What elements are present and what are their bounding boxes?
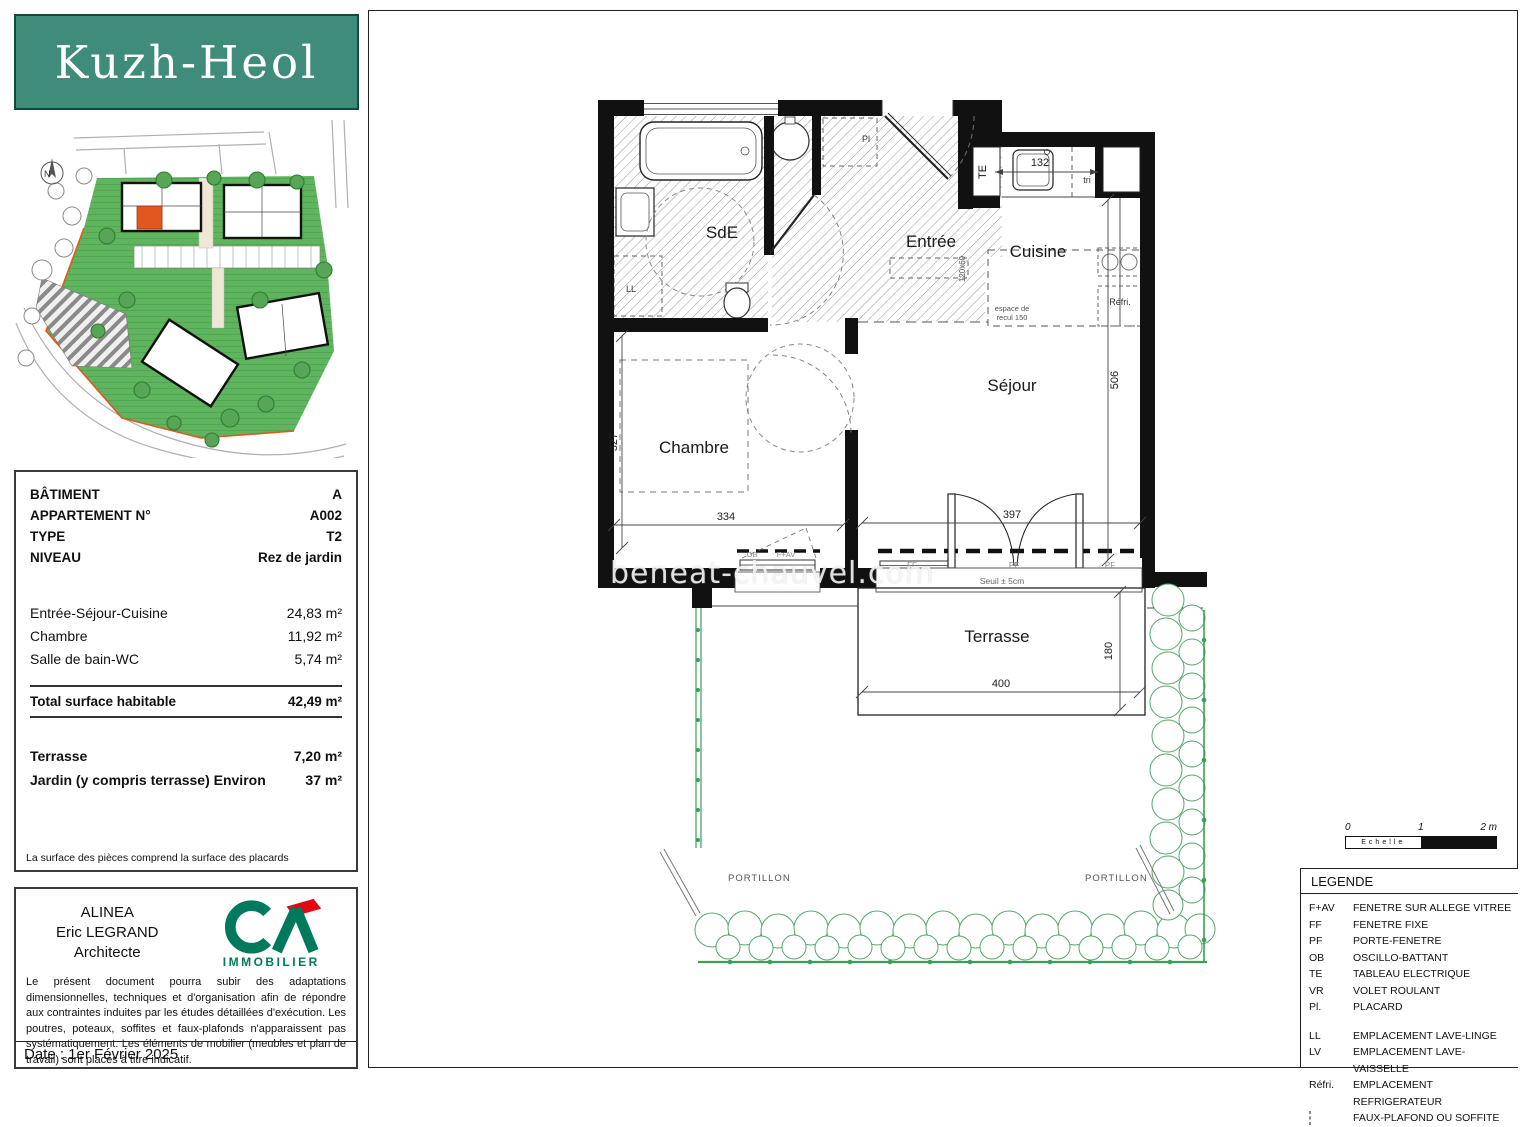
outdoor-row: Terrasse7,20 m² bbox=[30, 744, 342, 768]
tri-niche bbox=[1103, 147, 1140, 192]
north-compass: N bbox=[41, 158, 63, 184]
pl-label: Pl bbox=[862, 134, 870, 144]
architect-company: ALINEA bbox=[22, 903, 193, 923]
legend-row: TETABLEAU ELECTRIQUE bbox=[1301, 966, 1518, 983]
info-row: BÂTIMENTA bbox=[30, 484, 342, 505]
garden bbox=[660, 584, 1215, 964]
tri-label: tri bbox=[1083, 175, 1091, 185]
portillon-label-left: PORTILLON bbox=[728, 873, 791, 884]
pf-label-2: PF bbox=[1105, 561, 1115, 570]
dim-180: 180 bbox=[1103, 642, 1115, 660]
scale-label: Echelle bbox=[1346, 837, 1422, 848]
dim-334: 334 bbox=[717, 511, 735, 523]
residence-logo-text: Kuzh-Heol bbox=[55, 36, 319, 89]
room-label-cuisine: Cuisine bbox=[1010, 242, 1067, 261]
architect-name: Eric LEGRAND bbox=[22, 923, 193, 943]
garden-fence bbox=[696, 608, 1207, 962]
site-plan: N bbox=[14, 118, 359, 458]
surface-note: La surface des pièces comprend la surfac… bbox=[26, 852, 289, 864]
surface-row: Entrée-Séjour-Cuisine24,83 m² bbox=[30, 602, 342, 625]
te-label: TE bbox=[977, 165, 989, 179]
outdoor-list: Terrasse7,20 m² Jardin (y compris terras… bbox=[30, 744, 342, 792]
surface-list: Entrée-Séjour-Cuisine24,83 m² Chambre11,… bbox=[30, 602, 342, 671]
refri-label: Réfri. bbox=[1109, 297, 1131, 307]
scale-bar-black bbox=[1422, 837, 1497, 848]
wc-toilet bbox=[724, 283, 750, 318]
chambre-door-swing bbox=[773, 355, 851, 433]
legend-row: Réfri.EMPLACEMENT REFRIGERATEUR bbox=[1301, 1077, 1518, 1110]
dim-506: 506 bbox=[1109, 371, 1121, 389]
surface-row: Chambre11,92 m² bbox=[30, 625, 342, 648]
dim-397: 397 bbox=[1003, 509, 1021, 521]
washbasin bbox=[616, 188, 654, 236]
legend-row: VRVOLET ROULANT bbox=[1301, 983, 1518, 1000]
architect-box: ALINEA Eric LEGRAND Architecte IMMOBILIE… bbox=[14, 887, 358, 1069]
room-label-entree: Entrée bbox=[906, 232, 956, 251]
legend-row: LLEMPLACEMENT LAVE-LINGE bbox=[1301, 1028, 1518, 1045]
architect-names: ALINEA Eric LEGRAND Architecte bbox=[22, 903, 193, 963]
legend-title: LEGENDE bbox=[1301, 869, 1518, 894]
room-label-sde: SdE bbox=[706, 223, 738, 242]
legend-row: OBOSCILLO-BATTANT bbox=[1301, 950, 1518, 967]
hedge-bottom bbox=[695, 911, 1215, 960]
dim-132: 132 bbox=[1031, 157, 1049, 169]
architect-title: Architecte bbox=[22, 943, 193, 963]
scale-bar: 0 1 2 m Echelle bbox=[1345, 822, 1497, 849]
portillon-label-right: PORTILLON bbox=[1085, 873, 1148, 884]
ll-label: LL bbox=[626, 284, 636, 294]
scale-tick-2: 2 m bbox=[1480, 822, 1497, 833]
legend-row: FAUX-PLAFOND OU SOFFITE bbox=[1301, 1110, 1518, 1127]
total-surface-row: Total surface habitable42,49 m² bbox=[30, 685, 342, 718]
legend-row: Pl.PLACARD bbox=[1301, 999, 1518, 1016]
legend-box: LEGENDE F+AVFENETRE SUR ALLEGE VITREE FF… bbox=[1300, 868, 1518, 1067]
bathtub bbox=[640, 122, 762, 180]
legend-row: LVEMPLACEMENT LAVE-VAISSELLE bbox=[1301, 1044, 1518, 1077]
ca-logo-text: IMMOBILIER bbox=[223, 955, 320, 969]
legend-row: FFFENETRE FIXE bbox=[1301, 917, 1518, 934]
scale-tick-1: 1 bbox=[1418, 822, 1424, 833]
info-row: NIVEAURez de jardin bbox=[30, 547, 342, 568]
site-highlighted-unit bbox=[137, 206, 162, 229]
scale-tick-0: 0 bbox=[1345, 822, 1351, 833]
legend-row: PFPORTE-FENETRE bbox=[1301, 933, 1518, 950]
sde-window bbox=[644, 100, 778, 116]
hedge-right bbox=[1150, 584, 1205, 920]
kitchen-sink bbox=[1013, 150, 1053, 191]
residence-logo: Kuzh-Heol bbox=[14, 14, 359, 110]
room-label-chambre: Chambre bbox=[659, 438, 729, 457]
dim-400: 400 bbox=[992, 678, 1010, 690]
date-row: Date : 1er Février 2025 bbox=[16, 1041, 356, 1067]
dim-327: 327 bbox=[608, 433, 620, 451]
seuil-label: Seuil ± 5cm bbox=[980, 576, 1024, 586]
espace-recul-1: espace de bbox=[995, 304, 1030, 313]
espace-recul-2: recul 150 bbox=[997, 313, 1028, 322]
outdoor-row: Jardin (y compris terrasse) Environ37 m² bbox=[30, 768, 342, 792]
surface-row: Salle de bain-WC5,74 m² bbox=[30, 648, 342, 671]
electrical-panel: TE bbox=[973, 147, 1000, 196]
terrasse-outline bbox=[858, 588, 1145, 715]
north-label: N bbox=[44, 169, 51, 179]
watermark: beneat-chauvel.com bbox=[610, 556, 935, 591]
ca-logo-icon bbox=[213, 897, 329, 955]
bed-outline bbox=[620, 360, 748, 492]
apartment-info-box: BÂTIMENTA APPARTEMENT N°A002 TYPET2 NIVE… bbox=[14, 470, 358, 872]
info-row: APPARTEMENT N°A002 bbox=[30, 505, 342, 526]
legend-row: F+AVFENETRE SUR ALLEGE VITREE bbox=[1301, 900, 1518, 917]
hatch-swatch-icon bbox=[1309, 1111, 1311, 1125]
pf-label-1: PF bbox=[1009, 561, 1019, 570]
room-label-terrasse: Terrasse bbox=[964, 627, 1029, 646]
dim-placard: 120x60 bbox=[958, 255, 967, 282]
info-row: TYPET2 bbox=[30, 526, 342, 547]
ca-immobilier-logo: IMMOBILIER bbox=[193, 897, 350, 969]
room-label-sejour: Séjour bbox=[987, 376, 1036, 395]
